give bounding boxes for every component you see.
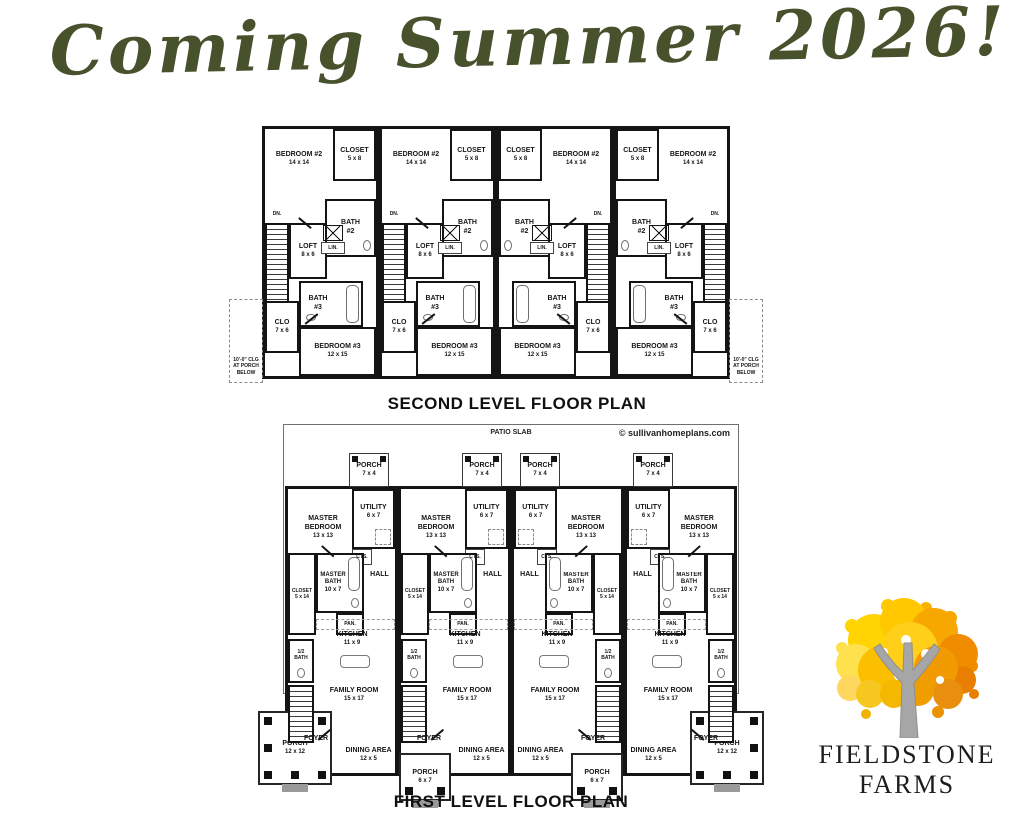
room-bedroom3: BEDROOM #3 12 x 15 xyxy=(616,327,693,376)
room-dining: DINING AREA 12 x 5 xyxy=(455,747,508,763)
room-bedroom3: BEDROOM #3 12 x 15 xyxy=(299,327,376,376)
stairs-down xyxy=(265,223,289,303)
rear-porch: PORCH 7 x 4 xyxy=(462,453,502,487)
room-closet: CLOSET 5 x 14 xyxy=(288,553,316,635)
room-master-bedroom: MASTER BEDROOM 13 x 13 xyxy=(668,515,730,540)
room-bath3: BATH #3 xyxy=(416,281,480,327)
room-bedroom3: BEDROOM #3 12 x 15 xyxy=(416,327,493,376)
second-level-unit: 10'-0" CLG AT PORCH BELOW BEDROOM #2 14 … xyxy=(262,126,379,379)
room-clo: CLO 7 x 6 xyxy=(265,301,299,353)
room-family-room: FAMILY ROOM 15 x 17 xyxy=(316,687,392,703)
linen-closet: LIN. xyxy=(438,242,462,254)
bathtub-fixture xyxy=(463,285,476,323)
room-bath3: BATH #3 xyxy=(299,281,363,327)
room-bedroom2: BEDROOM #2 14 x 14 xyxy=(544,151,608,167)
rear-porch: PORCH 7 x 4 xyxy=(349,453,389,487)
stairs-down-label: DN. xyxy=(384,211,404,217)
room-family-room: FAMILY ROOM 15 x 17 xyxy=(517,687,593,703)
rear-porch: PORCH 7 x 4 xyxy=(520,453,560,487)
first-level-caption: FIRST LEVEL FLOOR PLAN xyxy=(283,792,739,812)
toilet-fixture xyxy=(297,668,305,678)
room-hall: HALL xyxy=(477,571,508,580)
stairs-down xyxy=(382,223,406,303)
second-level-unit: 10'-0" CLG AT PORCH BELOW BEDROOM #2 14 … xyxy=(613,126,730,379)
first-level-plan: PATIO SLAB © sullivanhomeplans.com PORCH… xyxy=(255,418,795,818)
room-clo: CLO 7 x 6 xyxy=(693,301,727,353)
bathtub-fixture xyxy=(516,285,529,323)
first-level-unit: PORCH 7 x 4 PORCH 12 x 12 PORCH 6 x 7 MA… xyxy=(624,486,737,776)
room-bath3: BATH #3 xyxy=(512,281,576,327)
second-level-unit: 10'-0" CLG AT PORCH BELOW BEDROOM #2 14 … xyxy=(379,126,496,379)
toilet-fixture xyxy=(351,598,359,608)
room-closet: CLOSET 5 x 14 xyxy=(401,553,429,635)
room-kitchen: KITCHEN 11 x 9 xyxy=(318,631,386,647)
stairs-down xyxy=(703,223,727,303)
room-hall: HALL xyxy=(627,571,658,580)
room-foyer: FOYER xyxy=(294,735,338,744)
fieldstone-farms-logo: FIELDSTONE FARMS xyxy=(790,588,1024,803)
room-hall: HALL xyxy=(364,571,395,580)
second-level-plan: 10'-0" CLG AT PORCH BELOW BEDROOM #2 14 … xyxy=(228,122,773,422)
coats-closet: CTS. xyxy=(537,549,557,565)
room-family-room: FAMILY ROOM 15 x 17 xyxy=(630,687,706,703)
porch-below-outline: 10'-0" CLG AT PORCH BELOW xyxy=(729,299,763,383)
coats-closet: CTS. xyxy=(650,549,670,565)
page: Coming Summer 2026! 10'-0" CLG AT PORCH … xyxy=(0,0,1024,819)
room-master-bedroom: MASTER BEDROOM 13 x 13 xyxy=(555,515,617,540)
room-half-bath: 1/2 BATH xyxy=(708,639,734,683)
room-kitchen: KITCHEN 11 x 9 xyxy=(636,631,704,647)
toilet-fixture xyxy=(604,668,612,678)
room-family-room: FAMILY ROOM 15 x 17 xyxy=(429,687,505,703)
room-bedroom3: BEDROOM #3 12 x 15 xyxy=(499,327,576,376)
room-dining: DINING AREA 12 x 5 xyxy=(342,747,395,763)
room-closet: CLOSET 5 x 14 xyxy=(593,553,621,635)
room-half-bath: 1/2 BATH xyxy=(595,639,621,683)
room-foyer: FOYER xyxy=(571,735,615,744)
linen-closet: LIN. xyxy=(647,242,671,254)
toilet-fixture xyxy=(663,598,671,608)
room-clo: CLO 7 x 6 xyxy=(382,301,416,353)
rear-porch: PORCH 7 x 4 xyxy=(633,453,673,487)
room-kitchen: KITCHEN 11 x 9 xyxy=(431,631,499,647)
room-closet: CLOSET 5 x 14 xyxy=(706,553,734,635)
linen-closet: LIN. xyxy=(321,242,345,254)
second-level-unit: 10'-0" CLG AT PORCH BELOW BEDROOM #2 14 … xyxy=(496,126,613,379)
stairs-down xyxy=(586,223,610,303)
room-utility: UTILITY 6 x 7 xyxy=(352,489,395,549)
room-loft: LOFT 8 x 6 xyxy=(548,223,586,279)
stairs-down-label: DN. xyxy=(267,211,287,217)
room-bedroom2: BEDROOM #2 14 x 14 xyxy=(661,151,725,167)
porch-below-outline: 10'-0" CLG AT PORCH BELOW xyxy=(229,299,263,383)
room-closet: CLOSET 5 x 8 xyxy=(499,129,542,181)
room-dining: DINING AREA 12 x 5 xyxy=(627,747,680,763)
stairs-down-label: DN. xyxy=(588,211,608,217)
toilet-fixture xyxy=(464,598,472,608)
room-half-bath: 1/2 BATH xyxy=(401,639,427,683)
kitchen-island xyxy=(539,655,569,668)
logo-line1: FIELDSTONE xyxy=(790,740,1024,770)
room-half-bath: 1/2 BATH xyxy=(288,639,314,683)
toilet-fixture xyxy=(550,598,558,608)
room-master-bedroom: MASTER BEDROOM 13 x 13 xyxy=(292,515,354,540)
coats-closet: CTS. xyxy=(465,549,485,565)
room-utility: UTILITY 6 x 7 xyxy=(514,489,557,549)
room-loft: LOFT 8 x 6 xyxy=(665,223,703,279)
room-bedroom2: BEDROOM #2 14 x 14 xyxy=(267,151,331,167)
room-foyer: FOYER xyxy=(684,735,728,744)
linen-closet: LIN. xyxy=(530,242,554,254)
logo-wordmark: FIELDSTONE FARMS xyxy=(790,740,1024,800)
room-closet: CLOSET 5 x 8 xyxy=(333,129,376,181)
kitchen-island xyxy=(340,655,370,668)
ceiling-note: 10'-0" CLG AT PORCH BELOW xyxy=(231,357,261,377)
room-hall: HALL xyxy=(514,571,545,580)
first-level-unit: PORCH 7 x 4 PORCH 12 x 12 PORCH 6 x 7 MA… xyxy=(398,486,511,776)
toilet-fixture xyxy=(717,668,725,678)
bathtub-fixture xyxy=(346,285,359,323)
room-utility: UTILITY 6 x 7 xyxy=(465,489,508,549)
bathtub-fixture xyxy=(633,285,646,323)
kitchen-island xyxy=(652,655,682,668)
room-kitchen: KITCHEN 11 x 9 xyxy=(523,631,591,647)
logo-line2: FARMS xyxy=(790,770,1024,800)
room-closet: CLOSET 5 x 8 xyxy=(450,129,493,181)
first-level-unit: PORCH 7 x 4 PORCH 12 x 12 PORCH 6 x 7 MA… xyxy=(285,486,398,776)
ceiling-note: 10'-0" CLG AT PORCH BELOW xyxy=(731,357,761,377)
toilet-fixture xyxy=(410,668,418,678)
first-level-unit: PORCH 7 x 4 PORCH 12 x 12 PORCH 6 x 7 MA… xyxy=(511,486,624,776)
room-utility: UTILITY 6 x 7 xyxy=(627,489,670,549)
tree-icon xyxy=(819,588,995,738)
kitchen-island xyxy=(453,655,483,668)
room-bedroom2: BEDROOM #2 14 x 14 xyxy=(384,151,448,167)
room-clo: CLO 7 x 6 xyxy=(576,301,610,353)
room-bath3: BATH #3 xyxy=(629,281,693,327)
second-level-units: 10'-0" CLG AT PORCH BELOW BEDROOM #2 14 … xyxy=(262,126,730,379)
room-closet: CLOSET 5 x 8 xyxy=(616,129,659,181)
copyright-text: © sullivanhomeplans.com xyxy=(619,428,730,438)
stairs-down-label: DN. xyxy=(705,211,725,217)
coats-closet: CTS. xyxy=(352,549,372,565)
room-dining: DINING AREA 12 x 5 xyxy=(514,747,567,763)
room-master-bedroom: MASTER BEDROOM 13 x 13 xyxy=(405,515,467,540)
second-level-caption: SECOND LEVEL FLOOR PLAN xyxy=(282,394,752,414)
banner-title: Coming Summer 2026! xyxy=(49,0,981,124)
room-foyer: FOYER xyxy=(407,735,451,744)
first-level-units: PORCH 7 x 4 PORCH 12 x 12 PORCH 6 x 7 MA… xyxy=(285,486,737,776)
